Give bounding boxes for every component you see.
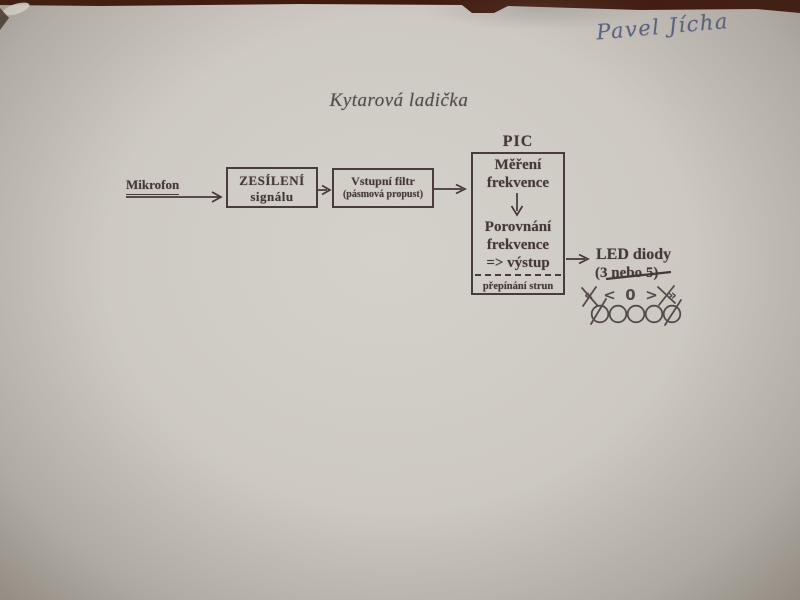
pic-dashed-separator (475, 274, 561, 276)
page-title: Kytarová ladička (314, 90, 484, 112)
right-chevron-icon: > (645, 286, 658, 304)
pic-measure-step: Měření frekvence (473, 156, 563, 192)
led-circle (610, 306, 627, 323)
led-output-label: LED diody (596, 246, 671, 264)
amplifier-block: ZESÍLENÍ signálu (226, 167, 318, 208)
pic-compare-line1: Porovnání (473, 218, 563, 236)
pic-compare-line3: => výstup (473, 254, 563, 272)
arrow-pic-to-led (566, 255, 588, 264)
led-circles (592, 306, 681, 323)
filter-block: Vstupní filtr (pásmová propust) (332, 168, 434, 208)
pic-label: PIC (471, 133, 565, 151)
pic-measure-line1: Měření (473, 156, 563, 174)
pic-compare-step: Porovnání frekvence => výstup (473, 218, 563, 272)
amplifier-block-line2: signálu (228, 189, 316, 205)
zero-center-icon: 0 (625, 286, 635, 304)
left-chevron-icon: < (603, 286, 616, 304)
arrow-amp-to-filter (318, 186, 330, 195)
led-circle (664, 306, 681, 323)
amplifier-block-line1: ZESÍLENÍ (228, 173, 316, 189)
pic-measure-line2: frekvence (473, 174, 563, 192)
photo-of-paper-diagram: Pavel Jícha Kytarová ladička Mikrofon ZE… (0, 0, 800, 600)
pic-compare-line2: frekvence (473, 236, 563, 254)
mikrofon-label: Mikrofon (126, 177, 179, 195)
led-count-option-label: (3 nebo 5) (595, 265, 658, 282)
filter-block-line2: (pásmová propust) (334, 188, 432, 201)
arrow-filter-to-pic (434, 185, 465, 194)
pic-footer-label: přepínání strun (473, 281, 563, 292)
filter-block-line1: Vstupní filtr (334, 174, 432, 188)
double-left-chevron-icon: « (584, 286, 594, 304)
led-circle (646, 306, 663, 323)
led-circle (592, 306, 609, 323)
led-indicator-symbols: « < 0 > » (584, 286, 677, 304)
led-circle (628, 306, 645, 323)
double-right-chevron-icon: » (667, 286, 677, 304)
pic-block: Měření frekvence Porovnání frekvence => … (471, 152, 565, 295)
